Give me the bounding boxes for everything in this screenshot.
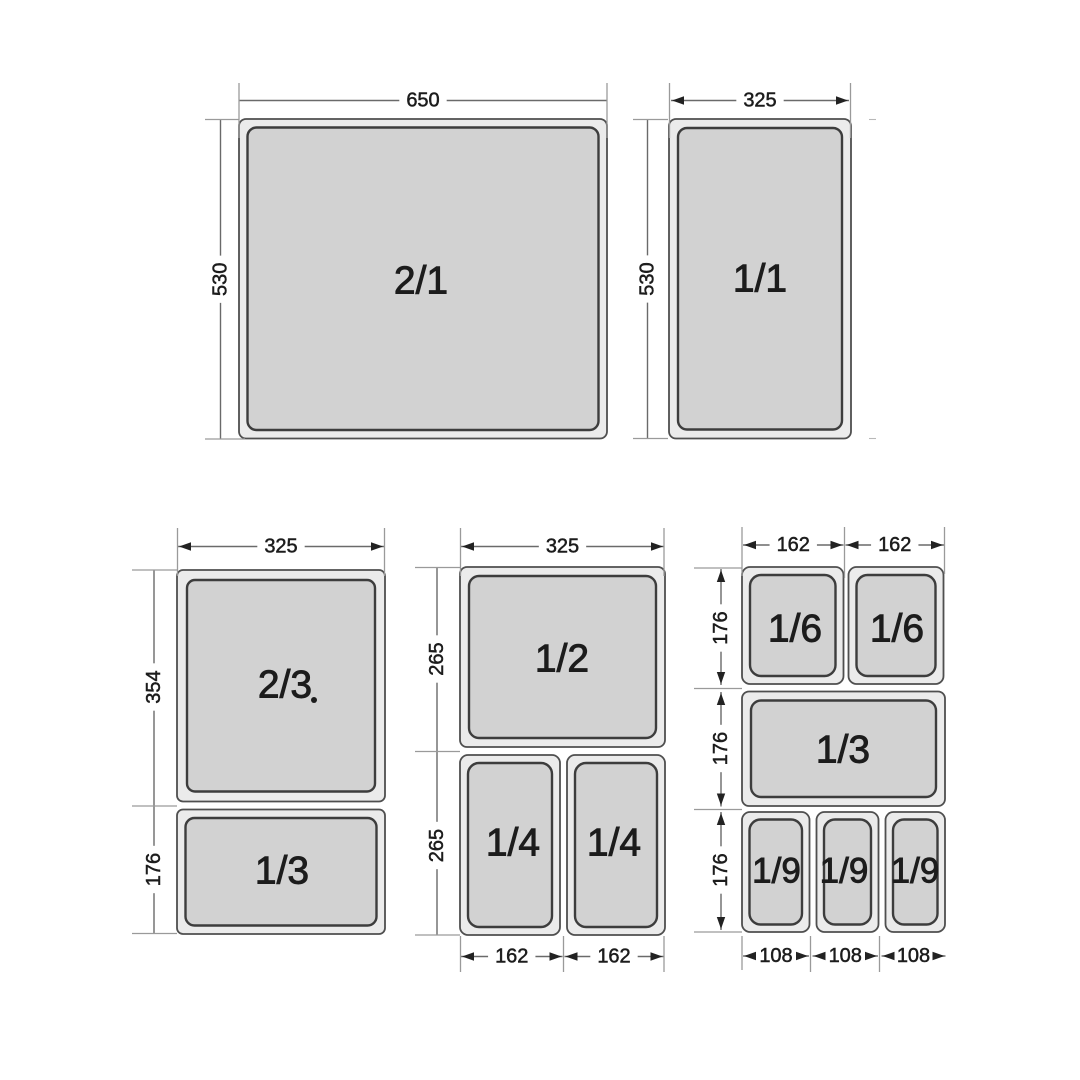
- svg-text:108: 108: [897, 945, 930, 967]
- svg-text:325: 325: [546, 536, 579, 558]
- svg-text:1/3: 1/3: [255, 850, 309, 893]
- svg-text:1/2: 1/2: [535, 638, 589, 681]
- svg-text:265: 265: [426, 642, 448, 675]
- svg-text:176: 176: [710, 732, 732, 765]
- svg-text:162: 162: [597, 946, 630, 968]
- svg-text:162: 162: [878, 534, 911, 556]
- svg-text:354: 354: [143, 670, 165, 703]
- svg-text:650: 650: [406, 90, 439, 112]
- svg-text:325: 325: [264, 536, 297, 558]
- svg-text:1/9: 1/9: [752, 852, 801, 891]
- svg-text:530: 530: [637, 262, 659, 295]
- svg-text:1/9: 1/9: [820, 852, 869, 891]
- svg-text:108: 108: [759, 945, 792, 967]
- svg-text:176: 176: [143, 853, 165, 886]
- svg-text:265: 265: [426, 829, 448, 862]
- svg-text:162: 162: [777, 534, 810, 556]
- svg-text:530: 530: [210, 263, 232, 296]
- svg-text:1/4: 1/4: [587, 822, 641, 865]
- svg-text:1/6: 1/6: [768, 608, 822, 651]
- svg-text:325: 325: [743, 90, 776, 112]
- svg-text:1/9: 1/9: [891, 852, 940, 891]
- svg-text:1/1: 1/1: [733, 258, 787, 301]
- svg-text:2/1: 2/1: [394, 260, 448, 303]
- svg-text:162: 162: [495, 946, 528, 968]
- svg-text:1/6: 1/6: [870, 608, 924, 651]
- svg-text:1/3: 1/3: [816, 729, 870, 772]
- svg-text:1/4: 1/4: [486, 822, 540, 865]
- svg-text:108: 108: [829, 945, 862, 967]
- svg-text:176: 176: [710, 611, 732, 644]
- svg-text:176: 176: [710, 853, 732, 886]
- svg-text:2/3: 2/3: [258, 664, 312, 707]
